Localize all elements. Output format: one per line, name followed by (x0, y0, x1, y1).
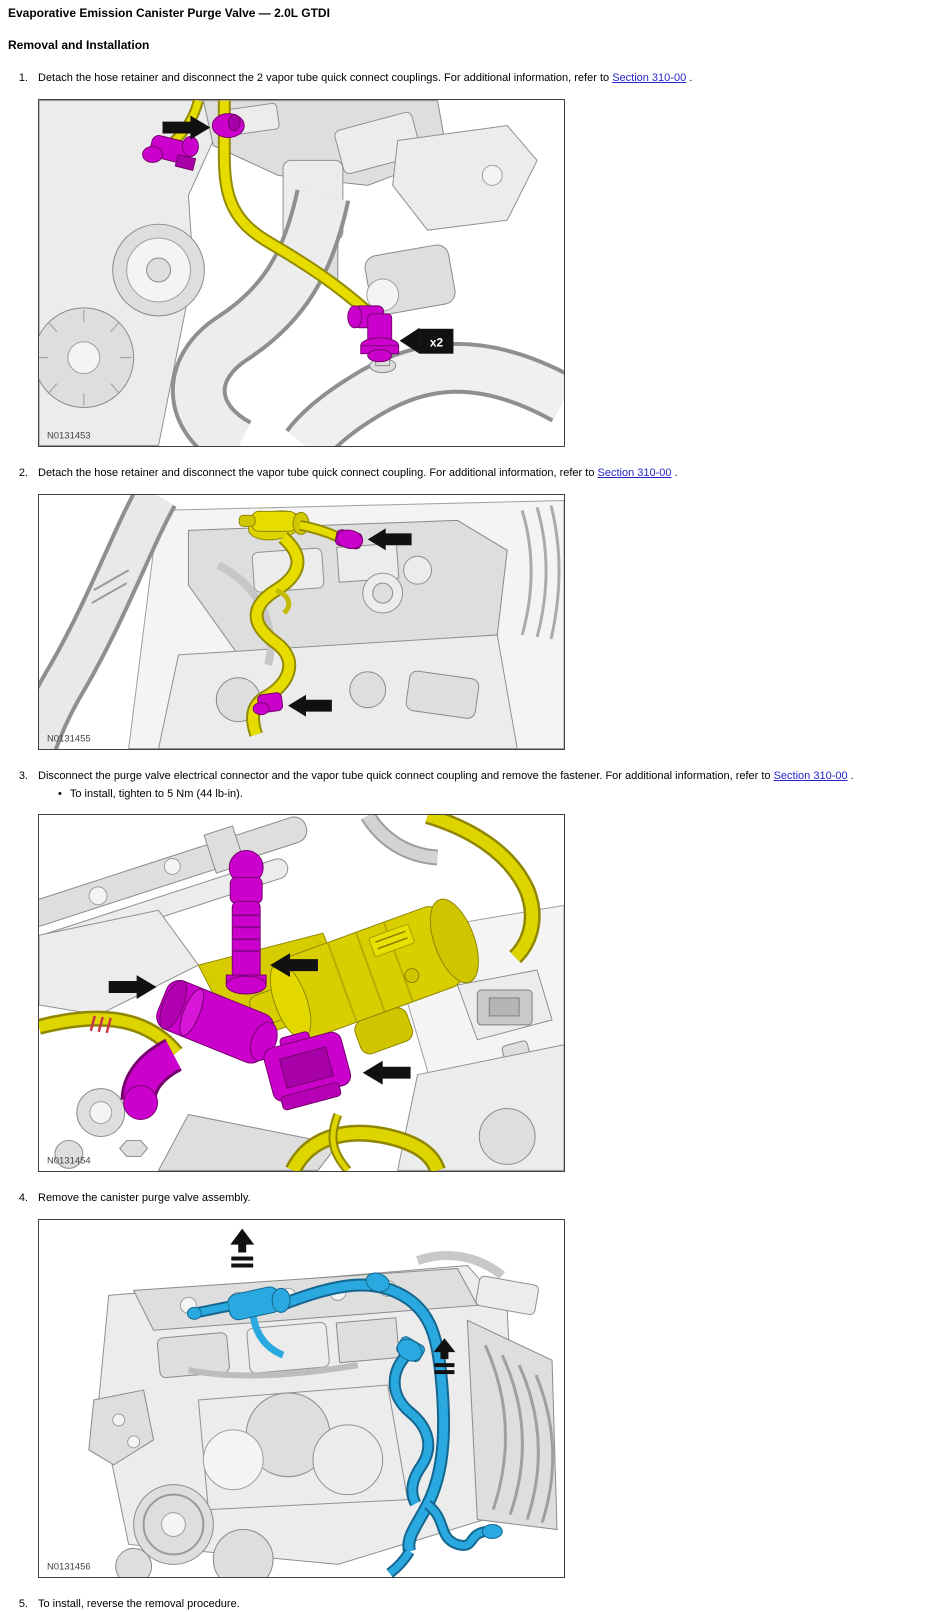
bullet-icon: • (58, 787, 62, 802)
step-number: 3. (8, 769, 28, 1173)
step-text: Disconnect the purge valve electrical co… (38, 769, 922, 784)
install-note: • To install, tighten to 5 Nm (44 lb-in)… (58, 787, 922, 802)
step-text-main: To install, reverse the removal procedur… (38, 1598, 240, 1610)
svg-text:x2: x2 (430, 336, 444, 350)
step-text-main: Remove the canister purge valve assembly… (38, 1192, 251, 1204)
step-text: Detach the hose retainer and disconnect … (38, 71, 922, 86)
step-number: 5. (8, 1597, 28, 1612)
figure-label: N0131455 (47, 733, 91, 744)
section-310-00-link[interactable]: Section 310-00 (774, 770, 848, 782)
section-310-00-link[interactable]: Section 310-00 (598, 467, 672, 479)
section-310-00-link[interactable]: Section 310-00 (612, 72, 686, 84)
step-number: 1. (8, 71, 28, 447)
engine-art (39, 101, 564, 446)
step-text-after: . (848, 770, 854, 782)
step-number: 2. (8, 466, 28, 750)
engine-illustration-4: N0131456 (39, 1220, 564, 1577)
step-text-main: Disconnect the purge valve electrical co… (38, 770, 774, 782)
step-1: 1. Detach the hose retainer and disconne… (8, 71, 922, 447)
install-note-text: To install, tighten to 5 Nm (44 lb-in). (70, 787, 243, 802)
removal-direction-icon (230, 1229, 254, 1268)
step-text: Remove the canister purge valve assembly… (38, 1191, 922, 1206)
step-number: 4. (8, 1191, 28, 1578)
figure-label: N0131456 (47, 1562, 91, 1573)
section-heading: Removal and Installation (8, 38, 922, 52)
page-title: Evaporative Emission Canister Purge Valv… (8, 0, 922, 20)
step-2: 2. Detach the hose retainer and disconne… (8, 466, 922, 750)
step-text-after: . (686, 72, 692, 84)
engine-illustration-3: N0131454 (39, 815, 564, 1171)
step-3: 3. Disconnect the purge valve electrical… (8, 769, 922, 1173)
figure-label: N0131453 (47, 430, 91, 441)
direction-arrow-icon (363, 1061, 411, 1085)
step-text: Detach the hose retainer and disconnect … (38, 466, 922, 481)
fastener-stud-highlight (226, 851, 266, 994)
document-page: Evaporative Emission Canister Purge Valv… (0, 0, 930, 1612)
step-text-main: Detach the hose retainer and disconnect … (38, 467, 598, 479)
figure-step4-illustration: N0131456 (38, 1219, 565, 1578)
step-text: To install, reverse the removal procedur… (38, 1597, 922, 1612)
step-text-main: Detach the hose retainer and disconnect … (38, 72, 612, 84)
figure-label: N0131454 (47, 1156, 91, 1167)
step-4: 4. Remove the canister purge valve assem… (8, 1191, 922, 1578)
engine-illustration-2: N0131455 (39, 495, 564, 749)
step-text-after: . (672, 467, 678, 479)
step-5: 5. To install, reverse the removal proce… (8, 1597, 922, 1612)
figure-step2-illustration: N0131455 (38, 494, 565, 750)
engine-illustration-1: x2 N0131453 (39, 100, 564, 446)
x2-coupling-highlight (348, 306, 399, 362)
figure-step1-illustration: x2 N0131453 (38, 99, 565, 447)
figure-step3-illustration: N0131454 (38, 814, 565, 1172)
